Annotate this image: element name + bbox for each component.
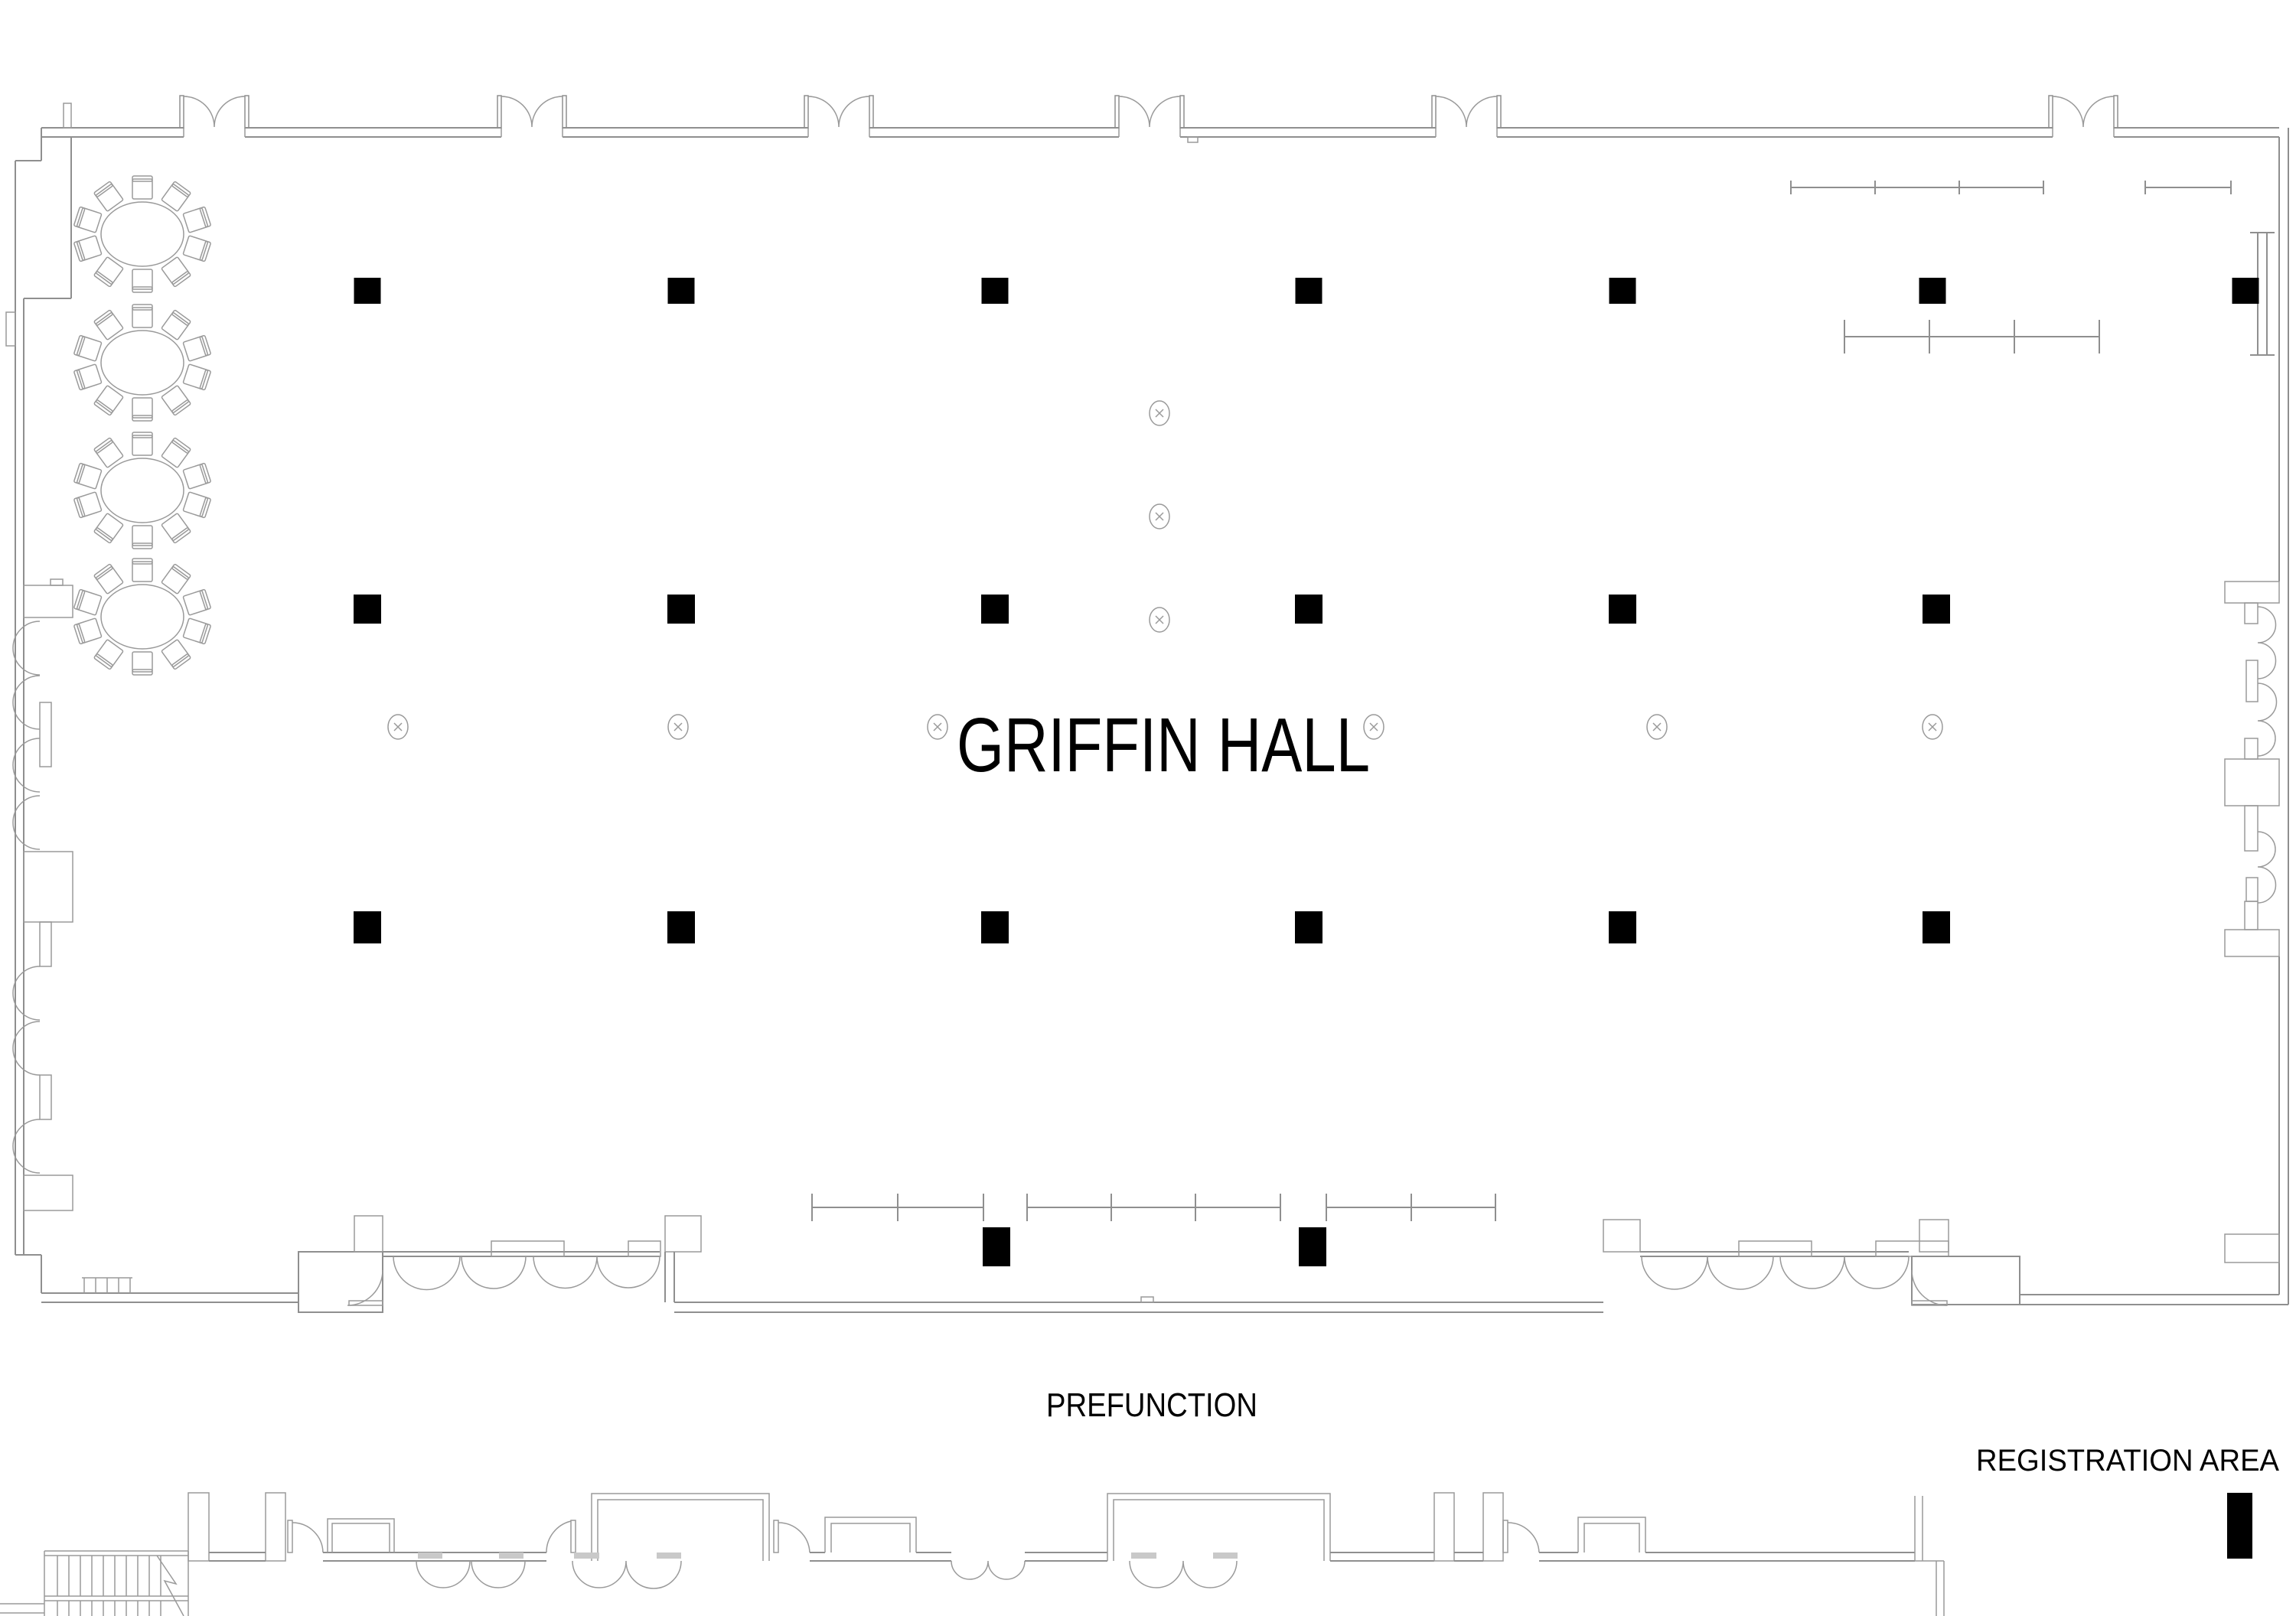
door-panel [40, 702, 51, 767]
corridor-room [1107, 1494, 1330, 1561]
door-swing [546, 1521, 571, 1552]
corridor-niche [825, 1517, 916, 1552]
track-mid-right [1844, 320, 2099, 353]
corridor-pillar [266, 1493, 285, 1561]
chair [132, 305, 152, 327]
top-wall [41, 128, 2279, 137]
door-swing [808, 96, 869, 127]
door-panel [2246, 660, 2258, 702]
door-leaf [2049, 96, 2053, 128]
door-leaf [774, 1520, 778, 1552]
right-wall-pier [2225, 582, 2279, 603]
chair-seat [77, 207, 102, 233]
right-wall-door-arcs [2258, 607, 2276, 903]
chair-seat [183, 236, 208, 261]
track-segment [1027, 1194, 1280, 1221]
structural-column [1919, 278, 1946, 304]
chair-seat [132, 269, 152, 289]
door-leaf [869, 96, 873, 128]
chair [73, 207, 102, 233]
corridor-pillar [1483, 1493, 1503, 1561]
banquet-table [73, 176, 210, 292]
ceiling-marker-x [394, 723, 402, 731]
left-wall [15, 128, 71, 1293]
door-leaf [1432, 96, 1436, 128]
structural-column [1295, 595, 1322, 624]
right-wall-pier [2225, 930, 2279, 956]
chair [132, 176, 152, 199]
door-swing [184, 96, 245, 127]
structural-column [667, 595, 695, 624]
door-panel [40, 1075, 51, 1119]
chair [73, 492, 102, 518]
chair [183, 492, 211, 518]
door-leaf [2114, 96, 2118, 128]
door-leaf [497, 96, 501, 128]
track-bottom [812, 1194, 1495, 1221]
top-wall-tab [1188, 137, 1198, 142]
door-panel [2246, 878, 2258, 901]
left-wall-pier [24, 852, 73, 922]
door-swing [501, 96, 563, 127]
table-top [101, 202, 184, 266]
chair-seat [132, 562, 152, 582]
chair-seat [77, 464, 102, 489]
structural-column [1609, 595, 1636, 624]
chair-seat [132, 435, 152, 455]
chair [183, 589, 211, 615]
door-swing [951, 1561, 1025, 1579]
floor-plan-drawing: GRIFFIN HALL PREFUNCTION REGISTRATION AR… [0, 0, 2296, 1616]
corridor-niche [1578, 1517, 1645, 1552]
corridor-end-wall [1915, 1496, 1944, 1616]
corridor-pillar [1434, 1493, 1454, 1561]
chair-seat [183, 618, 208, 643]
chair [73, 335, 102, 361]
chair-seat [132, 652, 152, 672]
registration-desk [2227, 1493, 2252, 1559]
track-segment [1326, 1194, 1495, 1221]
ceiling-marker-x [1156, 616, 1163, 624]
chair [73, 589, 102, 615]
door-leaf [180, 96, 184, 128]
hall-name-label: GRIFFIN HALL [957, 702, 1370, 788]
chair [132, 559, 152, 582]
table-top [101, 585, 184, 649]
structural-column [354, 911, 381, 943]
bottom-wall-right [2020, 1295, 2288, 1305]
corridor-niche [328, 1519, 394, 1552]
structural-column [1296, 278, 1322, 304]
chair [73, 618, 102, 644]
structural-column [983, 1227, 1010, 1266]
structural-column [668, 278, 695, 304]
prefunction-corridor-walls [0, 1493, 1944, 1616]
right-wall [2279, 128, 2288, 1305]
door-swing [1508, 1523, 1539, 1552]
door-leaf [1503, 1520, 1508, 1552]
bottom-right-alcove [1912, 1256, 2020, 1305]
track-segment [812, 1194, 983, 1221]
chair-seat [77, 364, 102, 389]
left-wall-pier [24, 1175, 73, 1210]
door-swing [416, 1561, 525, 1588]
chair-seat [183, 492, 208, 517]
ceiling-markers [388, 401, 1942, 739]
door-leaf [1115, 96, 1119, 128]
chair-seat [77, 236, 102, 261]
chair [183, 364, 211, 390]
door-swing [1436, 96, 1497, 127]
structural-column [354, 278, 381, 304]
right-wall-pier [2225, 759, 2279, 806]
table-top [101, 458, 184, 523]
chair-seat [183, 207, 208, 233]
door-swing [1119, 96, 1180, 127]
structural-column [1609, 278, 1636, 304]
ceiling-marker-x [1370, 723, 1378, 731]
door-swing [778, 1523, 810, 1552]
chair-seat [132, 179, 152, 199]
chair [183, 207, 211, 233]
structural-column [2232, 278, 2259, 304]
chair-seat [183, 590, 208, 615]
chair [73, 463, 102, 489]
chair-seat [183, 364, 208, 389]
bottom-door-swings [393, 1256, 660, 1290]
door-leaf [1180, 96, 1184, 128]
ceiling-marker-x [934, 723, 941, 731]
chair-seat [132, 526, 152, 546]
chair-seat [132, 398, 152, 418]
ceiling-marker-x [1156, 513, 1163, 520]
prefunction-label: PREFUNCTION [1046, 1386, 1257, 1424]
structural-column [981, 595, 1009, 624]
chair [73, 364, 102, 390]
door-leaf [571, 1520, 576, 1552]
bottom-wall-left [41, 1293, 298, 1302]
chair [132, 398, 152, 421]
bottom-door-swings [1642, 1256, 1909, 1289]
door-leaf [245, 96, 249, 128]
chair [183, 618, 211, 644]
chair-seat [77, 336, 102, 361]
chair [132, 432, 152, 455]
right-wall-pier [2225, 1234, 2279, 1262]
structural-column [1609, 911, 1636, 943]
door-leaf [288, 1520, 292, 1552]
bottom-left-alcove [298, 1252, 383, 1312]
door-swing [1130, 1561, 1237, 1588]
banquet-tables [73, 176, 210, 675]
door-leaf [804, 96, 808, 128]
corridor-pillar [188, 1493, 209, 1561]
door-swing [572, 1561, 681, 1588]
chair [132, 269, 152, 292]
chair [132, 652, 152, 675]
registration-area-label: REGISTRATION AREA [1976, 1444, 2279, 1478]
track-top-right [1791, 181, 2231, 194]
top-wall-doors [180, 96, 2118, 128]
structural-column [1923, 595, 1950, 624]
ceiling-marker-x [1929, 723, 1936, 731]
banquet-table [73, 305, 210, 421]
chair [183, 463, 211, 489]
door-swing [2053, 96, 2114, 127]
ceiling-marker-x [1156, 409, 1163, 417]
chair-seat [132, 308, 152, 327]
door-leaf [1497, 96, 1501, 128]
top-wall-pier [64, 103, 71, 128]
bottom-wall-center [674, 1302, 1603, 1312]
banquet-table [73, 559, 210, 675]
structural-column [982, 278, 1009, 304]
ceiling-marker-x [674, 723, 682, 731]
chair [73, 236, 102, 262]
structural-column [667, 911, 695, 943]
floor-plan: GRIFFIN HALL PREFUNCTION REGISTRATION AR… [0, 0, 2296, 1616]
partition-tracks [812, 181, 2275, 1221]
corridor-room [592, 1494, 769, 1561]
left-wall-door-arcs [13, 621, 40, 1173]
door-swing [292, 1523, 323, 1552]
door-leaf [563, 96, 566, 128]
left-wall-pier [24, 585, 73, 617]
chair-seat [183, 336, 208, 361]
structural-column [354, 595, 381, 624]
door-panel [40, 922, 51, 966]
chair [183, 335, 211, 361]
structural-column [981, 911, 1009, 943]
ceiling-marker-x [1653, 723, 1661, 731]
structural-column [1923, 911, 1950, 943]
banquet-table [73, 432, 210, 549]
chair-seat [183, 464, 208, 489]
table-top [101, 331, 184, 395]
stair [44, 1551, 188, 1616]
chair-seat [77, 492, 102, 517]
chair [132, 526, 152, 549]
chair-seat [77, 590, 102, 615]
chair [183, 236, 211, 262]
chair-seat [77, 618, 102, 643]
structural-column [1299, 1227, 1326, 1266]
structural-column [1295, 911, 1322, 943]
